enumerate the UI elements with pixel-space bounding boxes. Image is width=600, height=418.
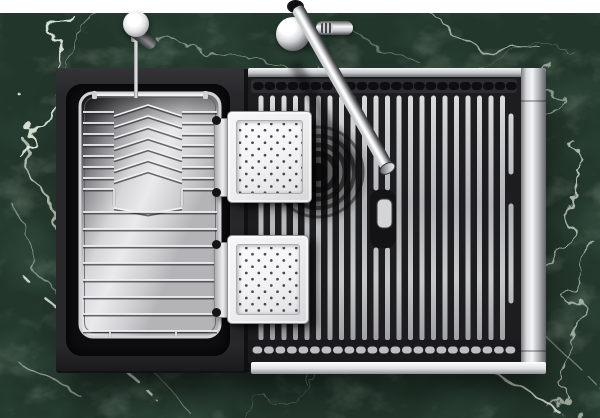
dish-drying-rack — [78, 91, 222, 339]
soap-dispenser-stem — [134, 41, 138, 98]
colander-tray-bottom — [227, 235, 309, 324]
colander-tray-top — [227, 111, 312, 203]
wing-notch — [212, 116, 221, 125]
perforation-dots — [237, 121, 303, 194]
colander-perforated-face — [236, 244, 300, 315]
wing-notch — [212, 308, 221, 317]
faucet-handle-grip — [321, 23, 333, 33]
sink-rim-bottom — [251, 362, 546, 374]
mat-handle-slot — [370, 190, 396, 248]
perforation-dots — [237, 245, 300, 315]
sink-rim-right — [521, 68, 546, 374]
faucet-handle — [316, 21, 353, 35]
wing-notch — [212, 188, 221, 197]
product-photo-kitchen-sink — [0, 0, 600, 418]
colander-perforated-face — [236, 120, 303, 194]
wing-notch — [212, 240, 221, 249]
soap-dispenser-head — [123, 11, 149, 37]
